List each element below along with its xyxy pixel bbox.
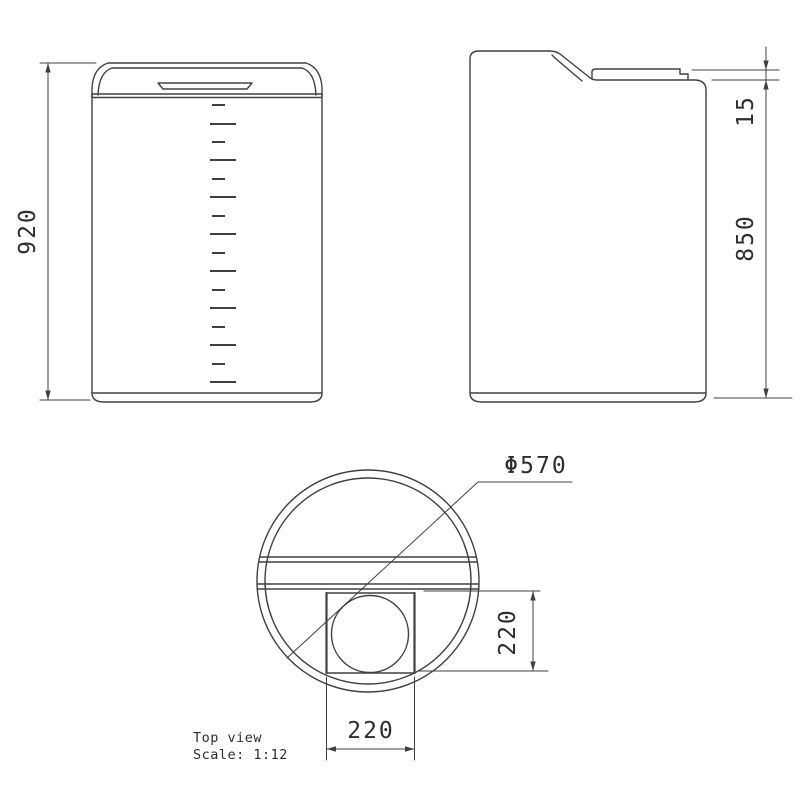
- side-view: [470, 51, 706, 402]
- arrow-down-icon: [45, 391, 50, 401]
- dimension-front-height: 920: [15, 63, 96, 400]
- view-caption: Top view Scale: 1:12: [193, 730, 288, 763]
- drawing-canvas: 920 15 850: [0, 0, 800, 800]
- scale-label: Scale: 1:12: [193, 747, 288, 763]
- top-view: Φ570: [257, 453, 572, 692]
- arrow-left-icon: [327, 746, 337, 751]
- technical-drawing: 920 15 850: [0, 0, 800, 800]
- arrow-down-icon: [530, 662, 535, 672]
- arrow-down-icon: [763, 389, 768, 399]
- view-label: Top view: [193, 730, 262, 746]
- side-body-height-label: 850: [733, 214, 759, 262]
- front-view: [92, 63, 322, 402]
- side-bottom-outline: [470, 393, 706, 402]
- opening-width-label: 220: [347, 718, 395, 744]
- front-lid-inner-line: [98, 68, 316, 95]
- side-lid-bar: [592, 69, 688, 79]
- opening-depth-label: 220: [495, 608, 521, 656]
- tank-outer-circle: [257, 470, 479, 692]
- front-level-scale-ticks: [210, 105, 236, 382]
- opening-hole-circle: [332, 596, 409, 673]
- front-body-bottom-outline: [92, 393, 322, 402]
- dimension-side-body-height: 850: [714, 214, 792, 398]
- arrow-up-icon: [45, 63, 50, 73]
- arrow-right-icon: [405, 746, 415, 751]
- side-lid-offset-label: 15: [733, 95, 759, 127]
- front-lid-handle-recess: [158, 83, 252, 89]
- arrow-down-icon: [763, 61, 768, 71]
- diameter-leader-line: [287, 482, 572, 658]
- side-outline: [470, 51, 706, 393]
- arrow-up-icon: [763, 80, 768, 90]
- top-diameter-label: Φ570: [504, 453, 567, 479]
- front-height-label: 920: [15, 207, 41, 255]
- dimension-opening-width: 220: [327, 677, 415, 760]
- dimension-opening-depth: 220: [418, 591, 548, 671]
- arrow-up-icon: [530, 591, 535, 601]
- tank-inner-circle: [265, 478, 471, 684]
